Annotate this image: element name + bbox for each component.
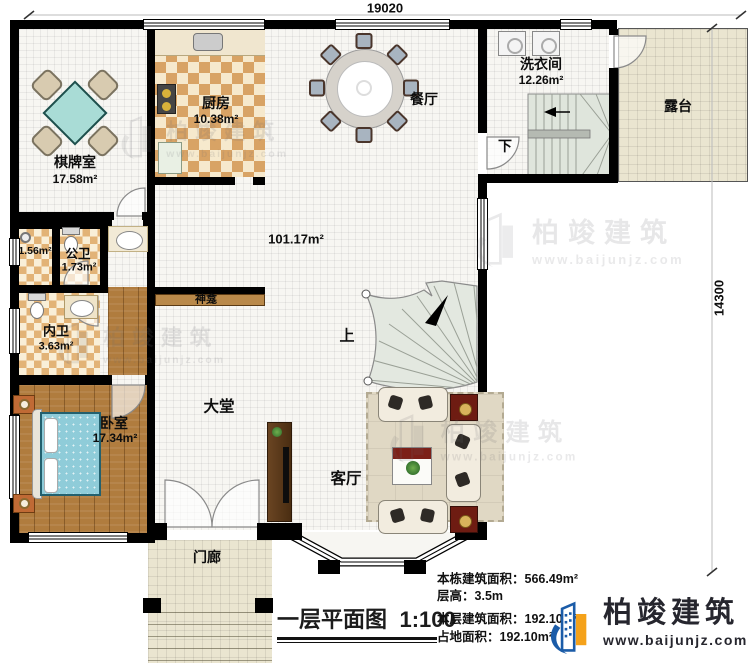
stat-label: 层高： xyxy=(437,589,475,603)
nightstand xyxy=(13,494,35,513)
dimension-width: 19020 xyxy=(367,2,403,15)
room-area-chess: 17.58m² xyxy=(53,173,98,185)
room-label-chess: 棋牌室 xyxy=(54,155,96,169)
lamp-icon xyxy=(19,399,30,410)
stairs-down-label: 下 xyxy=(498,139,512,153)
hall-area-label: 101.17m² xyxy=(268,233,324,246)
laundry-window xyxy=(560,19,592,30)
stat-label: 占地面积： xyxy=(437,630,500,644)
stat-label: 本层建筑面积： xyxy=(437,612,525,626)
toilet-icon xyxy=(62,227,80,235)
toilet-bowl-icon xyxy=(30,302,44,319)
room-label-laundry: 洗衣间 xyxy=(520,57,562,71)
room-area-kitchen: 10.38m² xyxy=(194,113,239,125)
washing-machine-icon xyxy=(498,31,526,56)
room-label-ensuite: 内卫 xyxy=(43,325,69,338)
shrine-label: 神龛 xyxy=(195,295,217,306)
room-area-bedroom: 17.34m² xyxy=(93,432,138,444)
coffee-table xyxy=(392,447,432,485)
room-label-lobby: 大堂 xyxy=(203,399,234,415)
stat-value: 3.5m xyxy=(475,589,504,603)
plan-title: 一层平面图 1:100 xyxy=(277,602,456,643)
stairs-up-label: 上 xyxy=(339,329,354,344)
dining-set xyxy=(316,40,412,136)
brand-website: www.baijunjz.com xyxy=(603,632,748,648)
lamp-icon xyxy=(459,515,472,528)
brand-name: 柏竣建筑 xyxy=(603,598,748,630)
title-underline-thin xyxy=(277,642,437,643)
fridge-icon xyxy=(158,142,182,174)
floor-plan: 柏竣建筑 www.baijunjz.com 柏竣建筑 www.baijunjz.… xyxy=(0,0,750,669)
bed xyxy=(40,412,101,496)
room-area-shower: 1.56m² xyxy=(18,246,51,257)
sofa xyxy=(378,500,448,534)
room-label-dining: 餐厅 xyxy=(410,92,438,106)
stat-footprint: 占地面积：192.10m² xyxy=(437,626,553,645)
entrance-door-left xyxy=(165,480,212,527)
lamp-icon xyxy=(19,498,30,509)
room-area-public-wc: 1.73m² xyxy=(62,263,97,274)
basin-sink-icon xyxy=(116,231,143,250)
plan-title-text: 一层平面图 xyxy=(277,607,387,632)
room-label-bedroom: 卧室 xyxy=(100,416,128,430)
door-terrace xyxy=(614,36,646,68)
kitchen-window xyxy=(143,19,265,30)
room-label-living: 客厅 xyxy=(330,471,361,487)
tv-icon xyxy=(283,447,289,503)
entrance-door-right xyxy=(212,480,259,527)
brand-logo-icon xyxy=(543,598,595,656)
ensuite-vanity xyxy=(64,295,98,319)
room-area-ensuite: 3.63m² xyxy=(39,342,74,353)
stove-icon xyxy=(157,84,176,114)
door-corridor xyxy=(117,188,145,216)
room-area-laundry: 12.26m² xyxy=(519,74,564,86)
room-label-porch: 门廊 xyxy=(193,550,221,564)
room-label-kitchen: 厨房 xyxy=(202,96,230,110)
brand-logo: 柏竣建筑 www.baijunjz.com xyxy=(543,598,748,656)
lamp-icon xyxy=(459,403,472,416)
toilet-icon xyxy=(28,293,46,301)
kitchen-sink-icon xyxy=(193,33,223,51)
title-underline xyxy=(277,637,437,640)
basin-counter xyxy=(108,226,148,252)
plant-icon xyxy=(272,427,282,437)
staircase-down xyxy=(528,94,612,178)
dimension-height: 14300 xyxy=(713,280,726,316)
ensuite-window xyxy=(9,308,20,354)
room-label-public-wc: 公卫 xyxy=(65,248,90,261)
tv-cabinet xyxy=(267,422,292,522)
stat-label: 本栋建筑面积： xyxy=(437,572,525,586)
door-bedroom xyxy=(112,385,145,418)
plant-icon xyxy=(406,461,420,475)
hall-window xyxy=(477,198,488,270)
side-table xyxy=(450,506,478,533)
room-label-terrace: 露台 xyxy=(664,99,692,113)
stat-floor-height: 层高：3.5m xyxy=(437,585,503,604)
sofa xyxy=(378,387,448,422)
bedroom-bottom-window xyxy=(28,532,128,543)
stat-value: 566.49m² xyxy=(525,572,579,586)
staircase-up xyxy=(362,275,483,390)
washing-machine-icon xyxy=(532,31,560,56)
dining-window xyxy=(335,19,450,30)
side-table xyxy=(450,394,478,421)
sofa xyxy=(446,424,481,502)
shower-head-icon xyxy=(20,232,31,243)
bedroom-side-window xyxy=(9,415,20,499)
